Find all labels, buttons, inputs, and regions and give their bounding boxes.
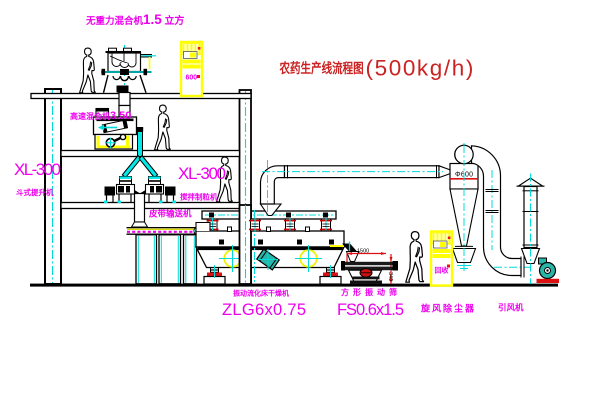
svg-text:皮带输送机: 皮带输送机 xyxy=(148,209,192,219)
svg-text:(500kg/h): (500kg/h) xyxy=(366,56,475,81)
svg-text:高速混合机3.50: 高速混合机3.50 xyxy=(70,110,131,122)
svg-text:XL-300: XL-300 xyxy=(178,164,226,183)
svg-text:搅拌制粒机: 搅拌制粒机 xyxy=(180,192,218,202)
svg-text:振动流化床干燥机: 振动流化床干燥机 xyxy=(233,289,289,298)
svg-text:FS0.6x1.5: FS0.6x1.5 xyxy=(337,301,404,319)
svg-text:斗式提升机: 斗式提升机 xyxy=(16,187,54,197)
svg-text:引风机: 引风机 xyxy=(498,303,524,313)
svg-text:农药生产线流程图: 农药生产线流程图 xyxy=(279,60,364,77)
svg-text:XL-300: XL-300 xyxy=(14,160,61,179)
svg-text:340: 340 xyxy=(387,272,393,281)
svg-text:旋风除尘器: 旋风除尘器 xyxy=(420,303,475,314)
svg-text:回收: 回收 xyxy=(435,266,450,275)
svg-text:1500: 1500 xyxy=(357,249,369,255)
svg-text:600: 600 xyxy=(186,75,198,82)
svg-text:ZLG6x0.75: ZLG6x0.75 xyxy=(222,301,306,319)
